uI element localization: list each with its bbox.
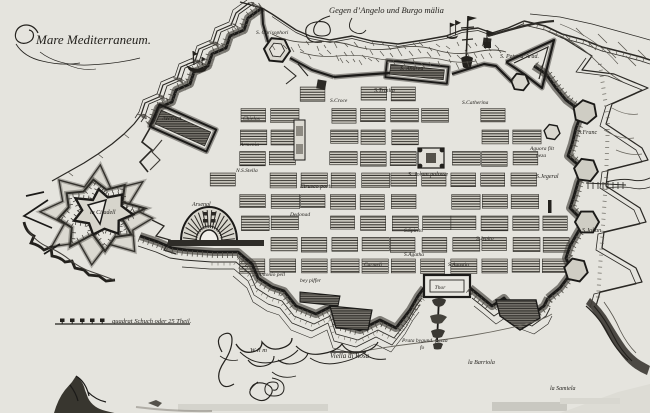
svg-text:Dedonad: Dedonad: [289, 212, 310, 218]
svg-text:Gegen d’Angelo und Burgo mälia: Gegen d’Angelo und Burgo mälia: [329, 5, 444, 15]
svg-text:Carmeli: Carmeli: [364, 262, 383, 268]
svg-text:Aguora filt: Aguora filt: [529, 145, 554, 152]
svg-text:fo: fo: [420, 344, 425, 351]
svg-text:S.Spirito: S.Spirito: [404, 228, 423, 234]
svg-text:la Barriola: la Barriola: [468, 360, 495, 366]
svg-text:Thor: Thor: [435, 285, 447, 291]
svg-text:la Samiela: la Samiela: [550, 386, 576, 392]
svg-text:Prata bygund. flazza: Prata bygund. flazza: [401, 337, 448, 344]
svg-text:S.Jegeral: S.Jegeral: [536, 174, 559, 180]
svg-text:quadrat Schuch oder 25 Theil.: quadrat Schuch oder 25 Theil.: [112, 318, 192, 325]
svg-text:S.Catherina: S.Catherina: [462, 100, 489, 106]
svg-text:neza: neza: [536, 153, 546, 159]
svg-text:S.Franc: S.Franc: [578, 130, 598, 136]
svg-text:S.Croce: S.Croce: [330, 98, 348, 104]
svg-text:Chielos: Chielos: [243, 116, 260, 122]
svg-text:S.Jepito: S.Jepito: [476, 236, 494, 242]
svg-text:Mare Mediterraneum.: Mare Mediterraneum.: [35, 32, 151, 47]
svg-text:Arsenal: Arsenal: [191, 202, 211, 208]
svg-text:S. Johan palosse: S. Johan palosse: [408, 172, 449, 178]
svg-text:S. Chrisophori: S. Chrisophori: [256, 30, 289, 36]
svg-text:Etrusco porti: Etrusco porti: [299, 184, 332, 190]
svg-text:N.S.Stella: N.S.Stella: [235, 168, 258, 174]
svg-text:S. Andrea: S. Andrea: [400, 66, 423, 72]
svg-text:Armenia: Armenia: [239, 142, 259, 148]
svg-text:S.Agatha: S.Agatha: [404, 252, 424, 258]
svg-text:W il m: W il m: [250, 347, 267, 354]
svg-text:la Citadell: la Citadell: [90, 210, 116, 216]
svg-text:S. Peter d’Arad.: S. Peter d’Arad.: [500, 54, 539, 60]
svg-text:Averara: Averara: [161, 116, 181, 122]
svg-text:S.Trinita: S.Trinita: [374, 88, 395, 94]
svg-text:Antonio pell: Antonio pell: [257, 272, 286, 278]
svg-text:S.Agustin: S.Agustin: [448, 262, 469, 268]
svg-text:S.Johan: S.Johan: [582, 228, 601, 234]
svg-text:bey piffer: bey piffer: [300, 277, 322, 284]
